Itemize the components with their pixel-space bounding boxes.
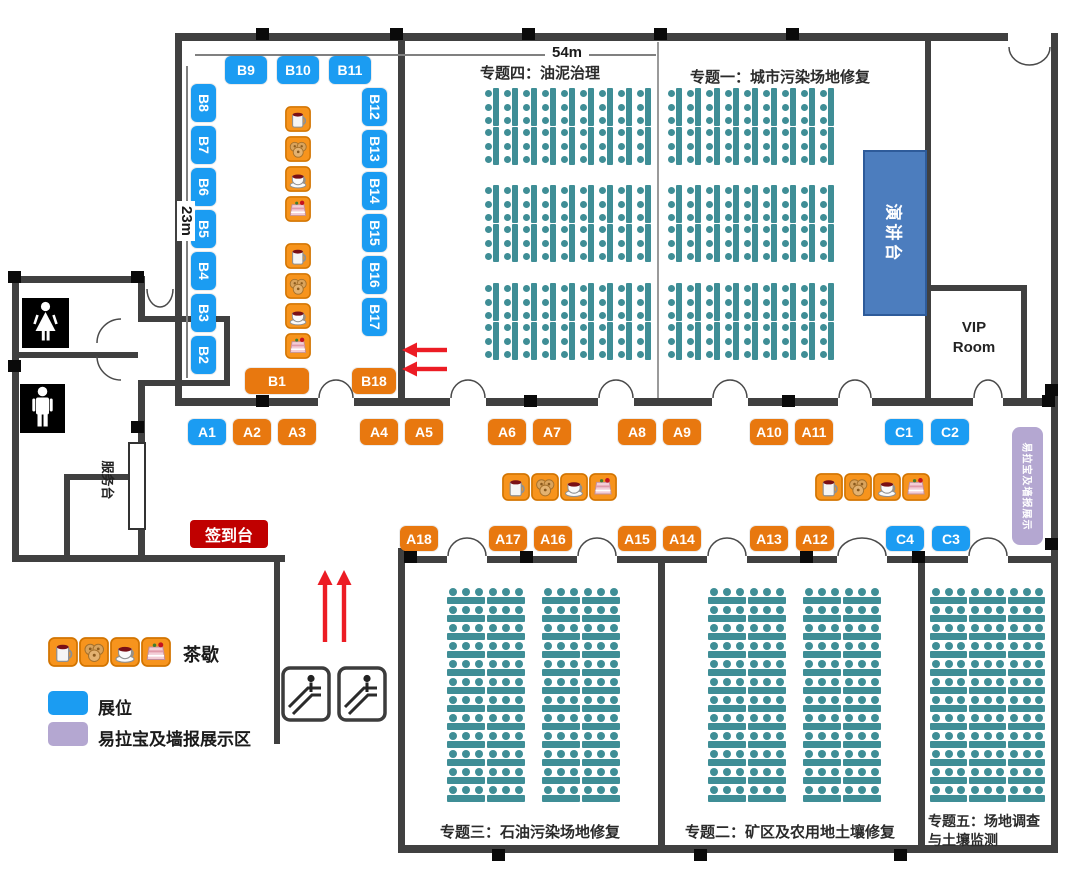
table (801, 224, 816, 262)
booth-A9: A9 (663, 419, 701, 445)
table (843, 750, 881, 766)
booth-B4: B4 (191, 252, 216, 290)
table (542, 283, 557, 321)
table (725, 224, 740, 262)
table (763, 127, 778, 165)
table (725, 283, 740, 321)
table (706, 127, 721, 165)
topic-3-title: 专题三：石油污染场地修复 (405, 821, 655, 842)
table (447, 678, 485, 694)
table (504, 224, 519, 262)
table (618, 224, 633, 262)
table (930, 732, 967, 748)
table (447, 696, 485, 712)
table (843, 588, 881, 604)
table (843, 786, 881, 802)
table (447, 588, 485, 604)
table (561, 283, 576, 321)
table (706, 322, 721, 360)
width-dimension-line (588, 54, 656, 56)
table (485, 224, 500, 262)
pillar (256, 395, 269, 407)
table (803, 642, 841, 658)
table (580, 224, 595, 262)
table (748, 732, 786, 748)
table (487, 624, 525, 640)
pillar (912, 551, 925, 563)
table (843, 624, 881, 640)
table (744, 127, 759, 165)
table (523, 224, 538, 262)
height-dimension-label: 23m (177, 201, 195, 241)
table (447, 768, 485, 784)
booth-B2: B2 (191, 336, 216, 374)
table (708, 696, 746, 712)
table (618, 185, 633, 223)
table (542, 588, 580, 604)
table (582, 768, 620, 784)
booth-A14: A14 (663, 526, 701, 551)
red-arrow-left-icon (402, 342, 448, 363)
table (618, 127, 633, 165)
pillar (390, 28, 403, 40)
door-arc-icon (973, 379, 1003, 404)
table (542, 678, 580, 694)
table (803, 588, 841, 604)
table (637, 283, 652, 321)
booth-A18: A18 (400, 526, 438, 551)
table (447, 714, 485, 730)
pillar (404, 551, 417, 563)
table (687, 127, 702, 165)
door-arc-icon (838, 379, 872, 404)
wall (1008, 556, 1051, 563)
table (1008, 750, 1045, 766)
table (668, 127, 683, 165)
table (748, 696, 786, 712)
table (820, 127, 835, 165)
table (582, 624, 620, 640)
wall (887, 556, 968, 563)
table (803, 732, 841, 748)
booth-B9: B9 (225, 56, 267, 84)
table (504, 283, 519, 321)
table (599, 185, 614, 223)
table (803, 678, 841, 694)
table (930, 786, 967, 802)
table (542, 696, 580, 712)
table (725, 127, 740, 165)
table (582, 588, 620, 604)
table (748, 588, 786, 604)
table (820, 185, 835, 223)
table (782, 224, 797, 262)
table (637, 88, 652, 126)
table (599, 322, 614, 360)
table (1008, 642, 1045, 658)
coffee-cup-icon (560, 473, 588, 506)
table (1008, 660, 1045, 676)
table (561, 322, 576, 360)
legend-banner-swatch (48, 722, 88, 746)
table (744, 224, 759, 262)
table (801, 185, 816, 223)
table (504, 88, 519, 126)
booth-B7: B7 (191, 126, 216, 164)
table (447, 732, 485, 748)
table (969, 606, 1006, 622)
table (668, 283, 683, 321)
wall (224, 316, 230, 386)
cake-icon (285, 333, 311, 364)
pillar (694, 849, 707, 861)
table (1008, 606, 1045, 622)
pillar (520, 551, 533, 563)
wall (64, 474, 70, 562)
booth-C1: C1 (885, 419, 923, 445)
table (687, 322, 702, 360)
table (763, 185, 778, 223)
table (487, 588, 525, 604)
booth-A7: A7 (533, 419, 571, 445)
table (637, 185, 652, 223)
podium: 演讲台 (863, 150, 927, 316)
table (487, 750, 525, 766)
table (930, 768, 967, 784)
table (744, 185, 759, 223)
table (969, 732, 1006, 748)
table (599, 88, 614, 126)
table (748, 660, 786, 676)
table (930, 750, 967, 766)
table (930, 714, 967, 730)
table (504, 322, 519, 360)
table (487, 732, 525, 748)
legend-banner-label: 易拉宝及墙报展示区 (98, 725, 251, 750)
table (580, 322, 595, 360)
table (744, 283, 759, 321)
pillar (8, 271, 21, 283)
table (748, 786, 786, 802)
door-arc-icon (1008, 41, 1051, 66)
table (485, 283, 500, 321)
table (969, 588, 1006, 604)
wall (1051, 33, 1058, 852)
table (748, 606, 786, 622)
table (1008, 768, 1045, 784)
wall (12, 276, 145, 283)
table (969, 768, 1006, 784)
wall (12, 555, 285, 562)
table (1008, 696, 1045, 712)
pillar (1042, 395, 1055, 407)
table (668, 185, 683, 223)
table (1008, 588, 1045, 604)
table (708, 624, 746, 640)
table (843, 696, 881, 712)
escalator-icon (281, 666, 331, 727)
door-arc-icon (318, 379, 354, 404)
table (447, 606, 485, 622)
table (1008, 732, 1045, 748)
table (708, 714, 746, 730)
table (485, 185, 500, 223)
coffee-cup-icon (873, 473, 901, 506)
table (803, 768, 841, 784)
service-desk-label: 服务台 (102, 450, 118, 510)
table (969, 678, 1006, 694)
mug-icon (815, 473, 843, 506)
table (542, 606, 580, 622)
pillar (1045, 538, 1058, 550)
table (803, 750, 841, 766)
table (748, 642, 786, 658)
table (485, 127, 500, 165)
door-arc-icon (712, 379, 748, 404)
booth-A16: A16 (534, 526, 572, 551)
wall (175, 33, 1008, 41)
table (487, 642, 525, 658)
table (542, 127, 557, 165)
topic-5-title: 专题五：场地调查 与土壤监测 (928, 812, 1053, 850)
wall (872, 398, 973, 406)
wall (12, 276, 19, 562)
booth-A8: A8 (618, 419, 656, 445)
table (582, 786, 620, 802)
table (744, 322, 759, 360)
table (801, 283, 816, 321)
booth-B18: B18 (352, 368, 396, 394)
pillar (786, 28, 799, 40)
table (668, 88, 683, 126)
table (487, 786, 525, 802)
table (748, 714, 786, 730)
booth-B13: B13 (362, 130, 387, 168)
table (782, 127, 797, 165)
table (782, 185, 797, 223)
door-arc-icon (837, 537, 887, 562)
table (708, 642, 746, 658)
door-arc-icon (96, 318, 122, 349)
cake-icon (141, 637, 171, 672)
booth-B14: B14 (362, 172, 387, 210)
cream-puff-icon (285, 273, 311, 304)
table (542, 88, 557, 126)
door-arc-icon (707, 537, 747, 562)
table (1008, 678, 1045, 694)
table (447, 642, 485, 658)
table (725, 88, 740, 126)
table (930, 678, 967, 694)
table (542, 185, 557, 223)
coffee-cup-icon (285, 166, 311, 197)
table (618, 88, 633, 126)
table (599, 224, 614, 262)
table (820, 322, 835, 360)
table (748, 750, 786, 766)
banner-display-strip: 易拉宝及墙报展示 (1012, 427, 1043, 545)
booth-B12: B12 (362, 88, 387, 126)
table (708, 678, 746, 694)
wall (138, 380, 230, 386)
table (668, 322, 683, 360)
table (582, 606, 620, 622)
cake-icon (285, 196, 311, 227)
wall (634, 398, 712, 406)
legend-booth-swatch (48, 691, 88, 715)
table (706, 224, 721, 262)
legend-booth-label: 展位 (98, 694, 132, 719)
table (930, 660, 967, 676)
table (687, 185, 702, 223)
table (803, 786, 841, 802)
booth-C3: C3 (932, 526, 970, 551)
table (708, 750, 746, 766)
cream-puff-icon (285, 136, 311, 167)
coffee-cup-icon (110, 637, 140, 672)
door-arc-icon (968, 537, 1008, 562)
table (820, 283, 835, 321)
wall (175, 398, 318, 406)
table (708, 588, 746, 604)
table (748, 678, 786, 694)
female-icon (22, 298, 69, 348)
table (637, 127, 652, 165)
table (930, 642, 967, 658)
pillar (256, 28, 269, 40)
table (820, 88, 835, 126)
door-arc-icon (598, 379, 634, 404)
hall-divider-line (657, 42, 659, 398)
booth-A6: A6 (488, 419, 526, 445)
table (763, 88, 778, 126)
table (582, 642, 620, 658)
female-restroom (22, 298, 69, 348)
table (843, 606, 881, 622)
table (487, 678, 525, 694)
table (487, 660, 525, 676)
table (748, 624, 786, 640)
table (930, 696, 967, 712)
table (637, 224, 652, 262)
booth-A4: A4 (360, 419, 398, 445)
booth-B16: B16 (362, 256, 387, 294)
door-arc-icon (577, 537, 617, 562)
table (618, 322, 633, 360)
table (523, 283, 538, 321)
booth-A15: A15 (618, 526, 656, 551)
table (487, 714, 525, 730)
table (843, 768, 881, 784)
table (561, 88, 576, 126)
table (725, 322, 740, 360)
table (930, 588, 967, 604)
booth-A2: A2 (233, 419, 271, 445)
table (447, 750, 485, 766)
table (487, 696, 525, 712)
table (618, 283, 633, 321)
table (599, 283, 614, 321)
booth-A3: A3 (278, 419, 316, 445)
pillar (800, 551, 813, 563)
table (542, 714, 580, 730)
width-dimension-label: 54m (545, 44, 589, 61)
coffee-cup-icon (285, 303, 311, 334)
table (725, 185, 740, 223)
cream-puff-icon (531, 473, 559, 506)
mug-icon (48, 637, 78, 672)
table (582, 732, 620, 748)
table (504, 127, 519, 165)
table (748, 768, 786, 784)
table (1008, 624, 1045, 640)
table (523, 127, 538, 165)
table (708, 732, 746, 748)
topic-1-title: 专题一：城市污染场地修复 (645, 66, 915, 87)
table (969, 642, 1006, 658)
table (561, 127, 576, 165)
booth-A5: A5 (405, 419, 443, 445)
mug-icon (502, 473, 530, 506)
wall (354, 398, 450, 406)
table (782, 283, 797, 321)
booth-B3: B3 (191, 294, 216, 332)
table (487, 606, 525, 622)
booth-A13: A13 (750, 526, 788, 551)
cake-icon (589, 473, 617, 506)
booth-A11: A11 (795, 419, 833, 445)
wall (274, 558, 280, 744)
door-arc-icon (146, 283, 174, 308)
cake-icon (902, 473, 930, 506)
table (708, 768, 746, 784)
wall (747, 556, 837, 563)
table (542, 768, 580, 784)
pillar (1045, 384, 1058, 396)
booth-B8: B8 (191, 84, 216, 122)
table (763, 224, 778, 262)
legend-tea-break-label: 茶歇 (183, 641, 219, 667)
table (542, 786, 580, 802)
table (801, 127, 816, 165)
cream-puff-icon (79, 637, 109, 672)
door-arc-icon (447, 537, 487, 562)
table (561, 185, 576, 223)
pillar (131, 421, 144, 433)
booth-B10: B10 (277, 56, 319, 84)
red-arrow-up-icon (317, 570, 333, 647)
table (1008, 786, 1045, 802)
table (782, 322, 797, 360)
table (687, 88, 702, 126)
wall (486, 398, 598, 406)
table (744, 88, 759, 126)
table (930, 606, 967, 622)
booth-B17: B17 (362, 298, 387, 336)
table (542, 732, 580, 748)
table (582, 660, 620, 676)
table (582, 714, 620, 730)
table (447, 660, 485, 676)
booth-B11: B11 (329, 56, 371, 84)
pillar (522, 28, 535, 40)
table (485, 322, 500, 360)
table (843, 732, 881, 748)
table (706, 88, 721, 126)
table (523, 322, 538, 360)
door-arc-icon (96, 350, 122, 381)
table (706, 185, 721, 223)
